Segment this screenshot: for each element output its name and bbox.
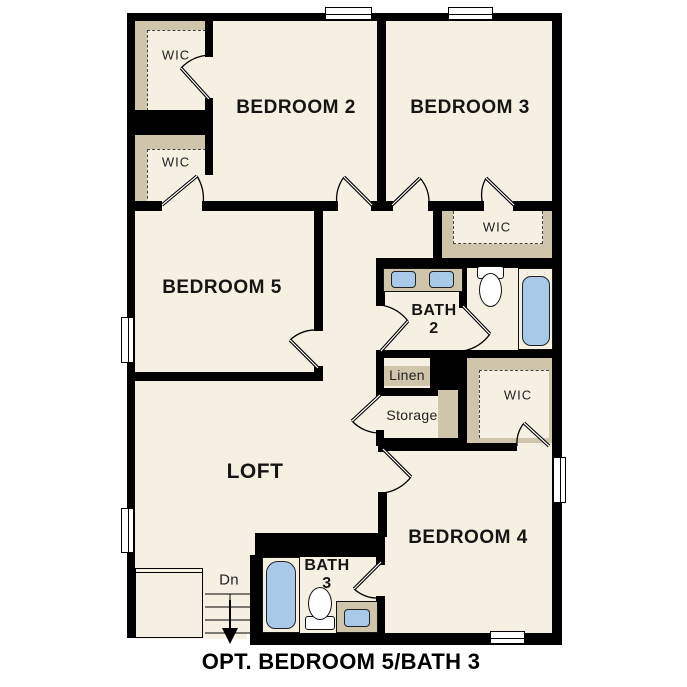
label-loft: LOFT — [227, 460, 284, 484]
label-bedroom4: BEDROOM 4 — [408, 527, 528, 549]
door-arc-bath3 — [354, 589, 381, 598]
door-arc-wic3 — [482, 178, 486, 205]
floor-plan: BEDROOM 2 BEDROOM 3 BEDROOM 5 LOFT BEDRO… — [0, 0, 687, 687]
door-arc-bedroom2 — [337, 177, 344, 205]
label-bath3-word: BATH — [304, 557, 349, 575]
label-linen: Linen — [389, 367, 425, 383]
label-bath3-number: 3 — [322, 575, 331, 593]
label-wic1: WIC — [162, 48, 190, 63]
label-storage: Storage — [386, 407, 437, 423]
door-arc-bedroom5 — [290, 330, 318, 340]
door-arcs — [181, 55, 524, 598]
door-arc-storage — [352, 421, 380, 433]
door-leaf-highlights — [162, 68, 549, 589]
door-arc-bath2 — [381, 305, 408, 321]
label-stairs-down: Dn — [219, 572, 239, 589]
door-arc-wic2 — [197, 176, 203, 205]
label-wic2: WIC — [162, 155, 190, 170]
label-wic3: WIC — [483, 220, 511, 235]
door-arc-bath2-toilet — [463, 334, 490, 351]
door-leaves — [162, 68, 549, 589]
door-arc-bedroom3 — [420, 178, 429, 205]
label-wic4: WIC — [504, 388, 532, 403]
label-bedroom2: BEDROOM 2 — [236, 97, 356, 119]
label-bedroom5: BEDROOM 5 — [162, 277, 282, 299]
label-bedroom3: BEDROOM 3 — [410, 97, 530, 119]
door-arc-bedroom4 — [383, 477, 411, 493]
label-bath2-word: BATH — [411, 302, 456, 320]
label-bath2-number: 2 — [429, 320, 438, 338]
plan-caption: OPT. BEDROOM 5/BATH 3 — [202, 649, 480, 675]
door-arc-wic4 — [517, 423, 524, 446]
